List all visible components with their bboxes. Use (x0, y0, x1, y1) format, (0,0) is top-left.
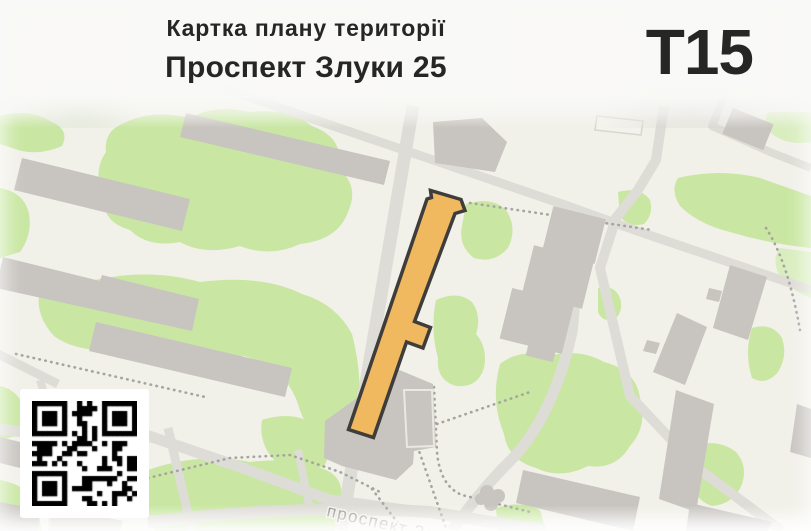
qr-code (20, 389, 149, 518)
card-subtitle: Картка плану території (0, 15, 612, 42)
territory-plan-card: проспект Злуки Картка плану території Пр… (0, 0, 811, 531)
title-block: Картка плану території Проспект Злуки 25 (0, 15, 612, 85)
sheet-code: Т15 (646, 20, 753, 84)
address-title: Проспект Злуки 25 (0, 51, 612, 85)
qr-code-image (32, 401, 137, 506)
header: Картка плану території Проспект Злуки 25… (0, 0, 811, 128)
